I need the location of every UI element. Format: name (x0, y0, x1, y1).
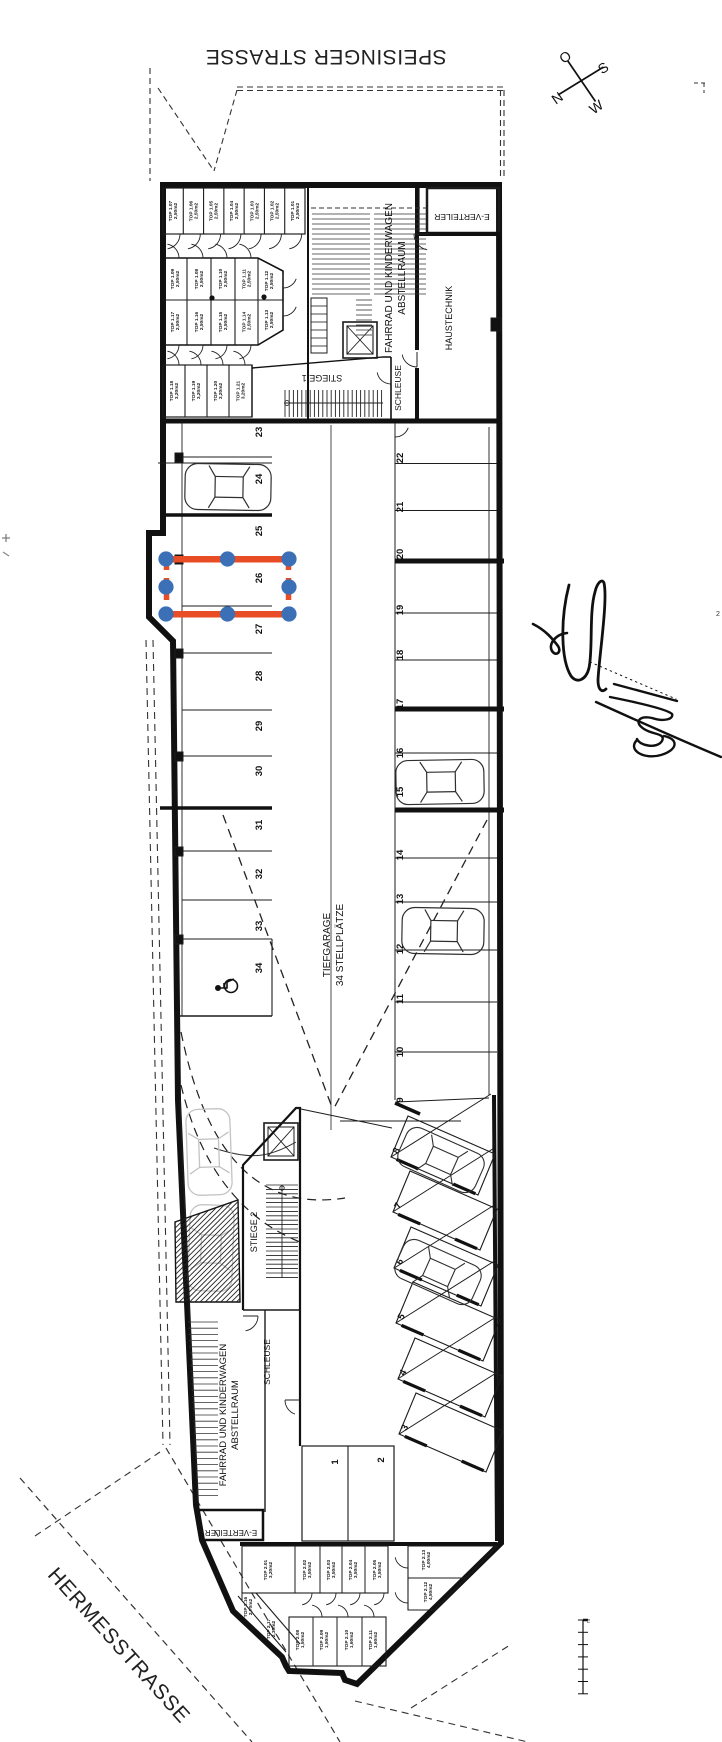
svg-text:2,50m2: 2,50m2 (223, 314, 229, 331)
svg-text:13: 13 (395, 894, 406, 905)
svg-text:2,50m2: 2,50m2 (234, 203, 240, 220)
svg-text:1,60m2: 1,60m2 (349, 1632, 355, 1649)
svg-text:26: 26 (254, 573, 265, 584)
svg-text:23: 23 (254, 427, 265, 438)
svg-text:3,20m2: 3,20m2 (218, 383, 224, 400)
svg-text:2,50m2: 2,50m2 (173, 203, 179, 220)
svg-text:STIEGE 1: STIEGE 1 (302, 373, 343, 383)
svg-text:33: 33 (254, 921, 265, 932)
svg-text:HAUSTECHNIK: HAUSTECHNIK (444, 286, 454, 351)
svg-text:2,50m2: 2,50m2 (223, 271, 229, 288)
svg-text:2: 2 (716, 611, 720, 618)
svg-text:FAHRRAD UND KINDERWAGEN: FAHRRAD UND KINDERWAGEN (384, 203, 395, 353)
svg-text:2,50m2: 2,50m2 (247, 314, 253, 331)
svg-text:2,50m2: 2,50m2 (269, 312, 275, 329)
svg-text:FAHRRAD UND KINDERWAGEN: FAHRRAD UND KINDERWAGEN (218, 1344, 229, 1487)
svg-text:2,50m2: 2,50m2 (275, 203, 281, 220)
svg-text:31: 31 (254, 819, 265, 830)
svg-text:SCHLEUSE: SCHLEUSE (393, 365, 403, 411)
svg-text:2,50m2: 2,50m2 (193, 203, 199, 220)
svg-text:ABSTELLRAUM: ABSTELLRAUM (397, 241, 408, 314)
svg-text:34: 34 (254, 962, 265, 973)
svg-text:19: 19 (395, 605, 406, 616)
svg-text:30: 30 (254, 766, 265, 777)
svg-text:3,20m2: 3,20m2 (196, 383, 202, 400)
svg-text:11: 11 (395, 993, 406, 1004)
svg-text:21: 21 (395, 501, 406, 512)
svg-text:34 STELLPLÄTZE: 34 STELLPLÄTZE (334, 904, 346, 987)
svg-text:20: 20 (395, 549, 406, 560)
svg-text:2,50m2: 2,50m2 (199, 314, 205, 331)
svg-text:1,60m2: 1,60m2 (373, 1632, 379, 1649)
svg-text:2,50m2: 2,50m2 (175, 271, 181, 288)
svg-text:2,50m2: 2,50m2 (175, 314, 181, 331)
svg-text:4,50m2: 4,50m2 (428, 1584, 434, 1601)
svg-text:3,50m2: 3,50m2 (331, 1562, 337, 1579)
svg-text:17: 17 (395, 699, 406, 710)
svg-text:3,20m2: 3,20m2 (241, 383, 247, 400)
svg-text:2,50m2: 2,50m2 (247, 271, 253, 288)
svg-text:TIEFGARAGE: TIEFGARAGE (322, 912, 333, 977)
svg-text:27: 27 (254, 624, 265, 635)
svg-text:16: 16 (395, 748, 406, 759)
svg-text:STIEGE 2: STIEGE 2 (249, 1212, 259, 1253)
svg-text:25: 25 (254, 525, 265, 536)
svg-text:3,50m2: 3,50m2 (307, 1562, 313, 1579)
svg-text:ABSTELLRAUM: ABSTELLRAUM (230, 1380, 241, 1450)
svg-text:32: 32 (254, 869, 265, 880)
svg-text:2,30m2: 2,30m2 (271, 1621, 277, 1638)
svg-text:24: 24 (254, 473, 265, 484)
svg-text:SPEISINGER STRASSE: SPEISINGER STRASSE (205, 45, 446, 68)
svg-text:E-VERTEILER: E-VERTEILER (434, 212, 490, 222)
svg-text:2,50m2: 2,50m2 (199, 271, 205, 288)
svg-text:E-VERTEILER: E-VERTEILER (205, 1528, 258, 1537)
svg-text:4,00m2: 4,00m2 (426, 1552, 432, 1569)
svg-text:22: 22 (395, 453, 406, 464)
svg-text:3,50m2: 3,50m2 (377, 1562, 383, 1579)
svg-text:2: 2 (376, 1457, 387, 1462)
svg-text:2,50m2: 2,50m2 (269, 273, 275, 290)
svg-text:2,50m2: 2,50m2 (295, 203, 301, 220)
svg-text:10: 10 (395, 1047, 406, 1058)
svg-text:2,50m2: 2,50m2 (254, 203, 260, 220)
svg-text:3,20m2: 3,20m2 (174, 383, 180, 400)
svg-text:3,50m2: 3,50m2 (353, 1562, 359, 1579)
svg-text:3,20m2: 3,20m2 (268, 1562, 274, 1579)
svg-text:2,50m2: 2,50m2 (214, 203, 220, 220)
svg-text:2,70m2: 2,70m2 (248, 1599, 254, 1616)
svg-text:18: 18 (395, 650, 406, 661)
svg-text:1: 1 (330, 1459, 341, 1465)
svg-text:14: 14 (395, 849, 406, 860)
svg-text:1,50m2: 1,50m2 (324, 1632, 330, 1649)
svg-text:m: m (586, 1619, 592, 1623)
svg-text:SCHLEUSE: SCHLEUSE (262, 1339, 272, 1385)
svg-text:29: 29 (254, 721, 265, 732)
svg-text:1,50m2: 1,50m2 (300, 1632, 306, 1649)
svg-text:28: 28 (254, 671, 265, 682)
